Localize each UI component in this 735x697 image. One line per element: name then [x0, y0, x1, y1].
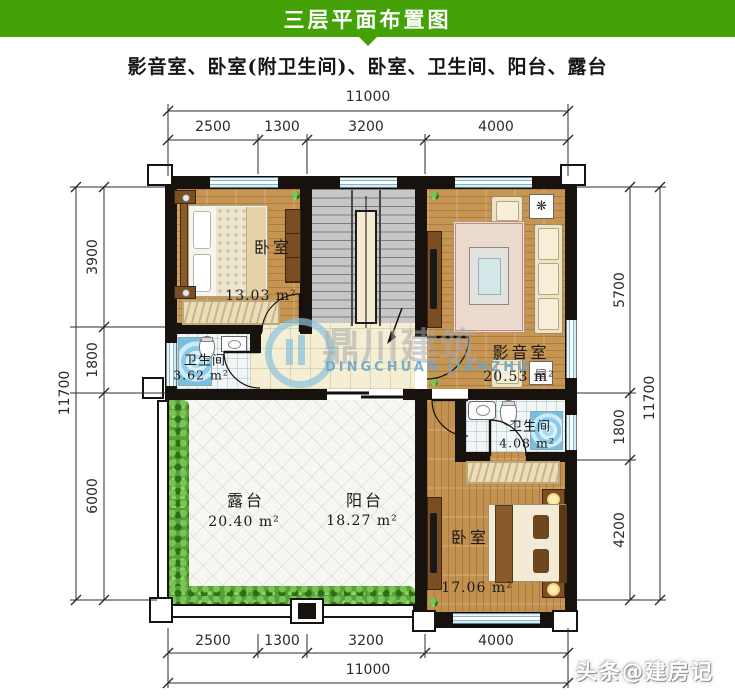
door-arc-bedroom2 — [432, 400, 468, 436]
room-label-terrace: 露台 — [227, 487, 265, 511]
room-label-bathroom1: 卫生间 — [184, 350, 226, 369]
dim-left-seg: 1800 — [85, 342, 101, 378]
floorplan-page: 三层平面布置图 影音室、卧室(附卫生间)、卧室、卫生间、阳台、露台 — [0, 0, 735, 697]
watermark-logo-bar — [298, 335, 305, 365]
toutiao-badge: 头条@建房记 — [576, 656, 714, 686]
dim-top-total: 11000 — [346, 89, 391, 105]
watermark-logo-bar — [286, 339, 293, 365]
room-area-bathroom2: 4.08 m² — [499, 436, 555, 451]
dim-right-seg: 1800 — [612, 409, 628, 445]
room-area-bedroom2: 17.06 m² — [441, 580, 512, 596]
dim-right-seg: 4200 — [612, 512, 628, 548]
dim-bottom-seg: 3200 — [348, 633, 384, 649]
dim-right-seg: 5700 — [612, 272, 628, 308]
door-arc-bathroom1 — [224, 352, 260, 388]
dim-left-seg: 3900 — [85, 239, 101, 275]
dim-top-seg: 2500 — [195, 119, 231, 135]
dim-bottom-seg: 4000 — [478, 633, 514, 649]
room-area-bathroom1: 3.62 m² — [173, 368, 229, 383]
dim-left-total: 11700 — [57, 371, 73, 416]
dim-bottom-seg: 1300 — [264, 633, 300, 649]
room-label-balcony: 阳台 — [346, 487, 384, 511]
room-label-bedroom1: 卧室 — [254, 234, 292, 258]
room-area-balcony: 18.27 m² — [326, 513, 397, 529]
dim-lines-top — [168, 104, 568, 176]
room-label-bedroom2: 卧室 — [451, 524, 489, 548]
dim-bottom-total: 11000 — [346, 662, 391, 678]
sliding-door-balcony — [327, 393, 403, 397]
dim-top-seg: 4000 — [478, 119, 514, 135]
dim-top-seg: 1300 — [264, 119, 300, 135]
dim-bottom-seg: 2500 — [195, 633, 231, 649]
dim-left-seg: 6000 — [85, 478, 101, 514]
room-label-bathroom2: 卫生间 — [509, 416, 551, 435]
dim-right-total: 11700 — [642, 376, 658, 421]
room-area-terrace: 20.40 m² — [208, 514, 279, 530]
dim-top-seg: 3200 — [348, 119, 384, 135]
watermark-en: DINGCHUAN JIANZHU — [325, 360, 531, 375]
room-area-bedroom1: 13.03 m² — [225, 288, 296, 304]
